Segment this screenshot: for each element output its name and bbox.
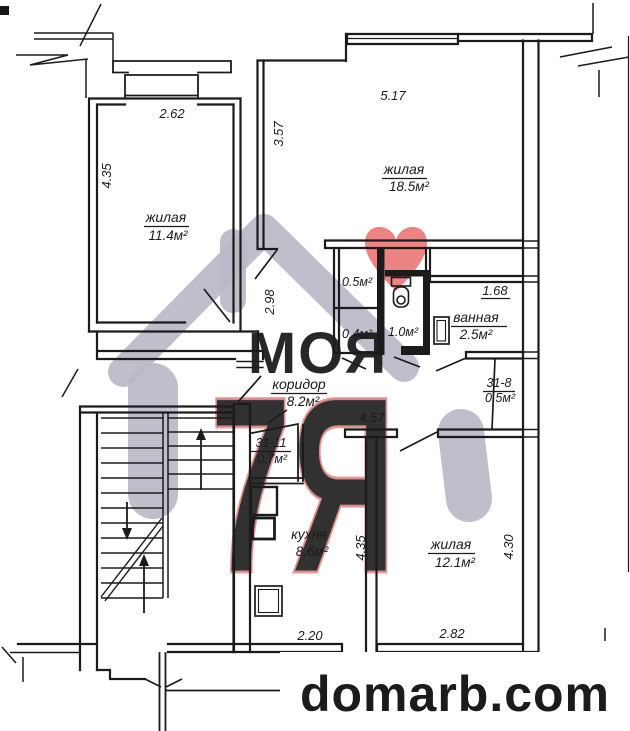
dim-living3-width: 2.82 xyxy=(438,626,465,641)
room-area-bathroom: 2.5м² xyxy=(459,327,493,342)
room-area-living3: 12.1м² xyxy=(435,555,476,570)
room-area-living1: 11.4м² xyxy=(148,228,188,243)
room-area-storage-31-11: 0.7м² xyxy=(257,452,288,466)
dim-living1-height: 4.35 xyxy=(99,163,114,189)
room-area-kitchen: 8.6м² xyxy=(296,544,329,559)
room-area-corridor: 8.2м² xyxy=(287,394,320,409)
room-name-storage-31-8: 31-8 xyxy=(486,376,511,390)
dim-living2-width: 5.17 xyxy=(380,88,406,103)
scan-artifact xyxy=(0,6,9,15)
dim-kitchen-width: 2.20 xyxy=(296,628,323,643)
dim-living2-left-height: 3.57 xyxy=(271,121,286,147)
room-name-living3: жилая xyxy=(430,536,472,552)
room-area-storage-31-8: 0.5м² xyxy=(485,391,516,405)
room-area-living2: 18.5м² xyxy=(389,179,430,194)
dim-living1-width: 2.62 xyxy=(158,106,185,121)
floor-plan-svg: МОЯ 7Я xyxy=(0,0,630,731)
floor-plan-page: МОЯ 7Я xyxy=(0,0,630,731)
dim-kitchen-height: 4.35 xyxy=(353,535,368,561)
room-name-bathroom: ванная xyxy=(453,309,499,325)
room-name-living1: жилая xyxy=(145,209,187,225)
room-name-storage-31-11: 31-11 xyxy=(255,436,286,450)
site-banner: domarb.com xyxy=(280,652,630,731)
room-area-storage-mid: 0.4м² xyxy=(342,327,373,341)
room-name-kitchen: кухня xyxy=(291,526,327,542)
dim-partition-height: 2.98 xyxy=(262,289,277,316)
site-domain-text: domarb.com xyxy=(300,666,610,722)
dim-living3-height: 4.30 xyxy=(501,534,516,560)
dim-corridor-width: 4.57 xyxy=(359,410,385,425)
room-area-storage-top: 0.5м² xyxy=(342,275,373,289)
room-area-wc: 1.0м² xyxy=(388,325,419,339)
room-name-living2: жилая xyxy=(383,161,425,177)
room-name-corridor: коридор xyxy=(272,376,325,392)
dim-bathroom-width: 1.68 xyxy=(482,283,508,298)
